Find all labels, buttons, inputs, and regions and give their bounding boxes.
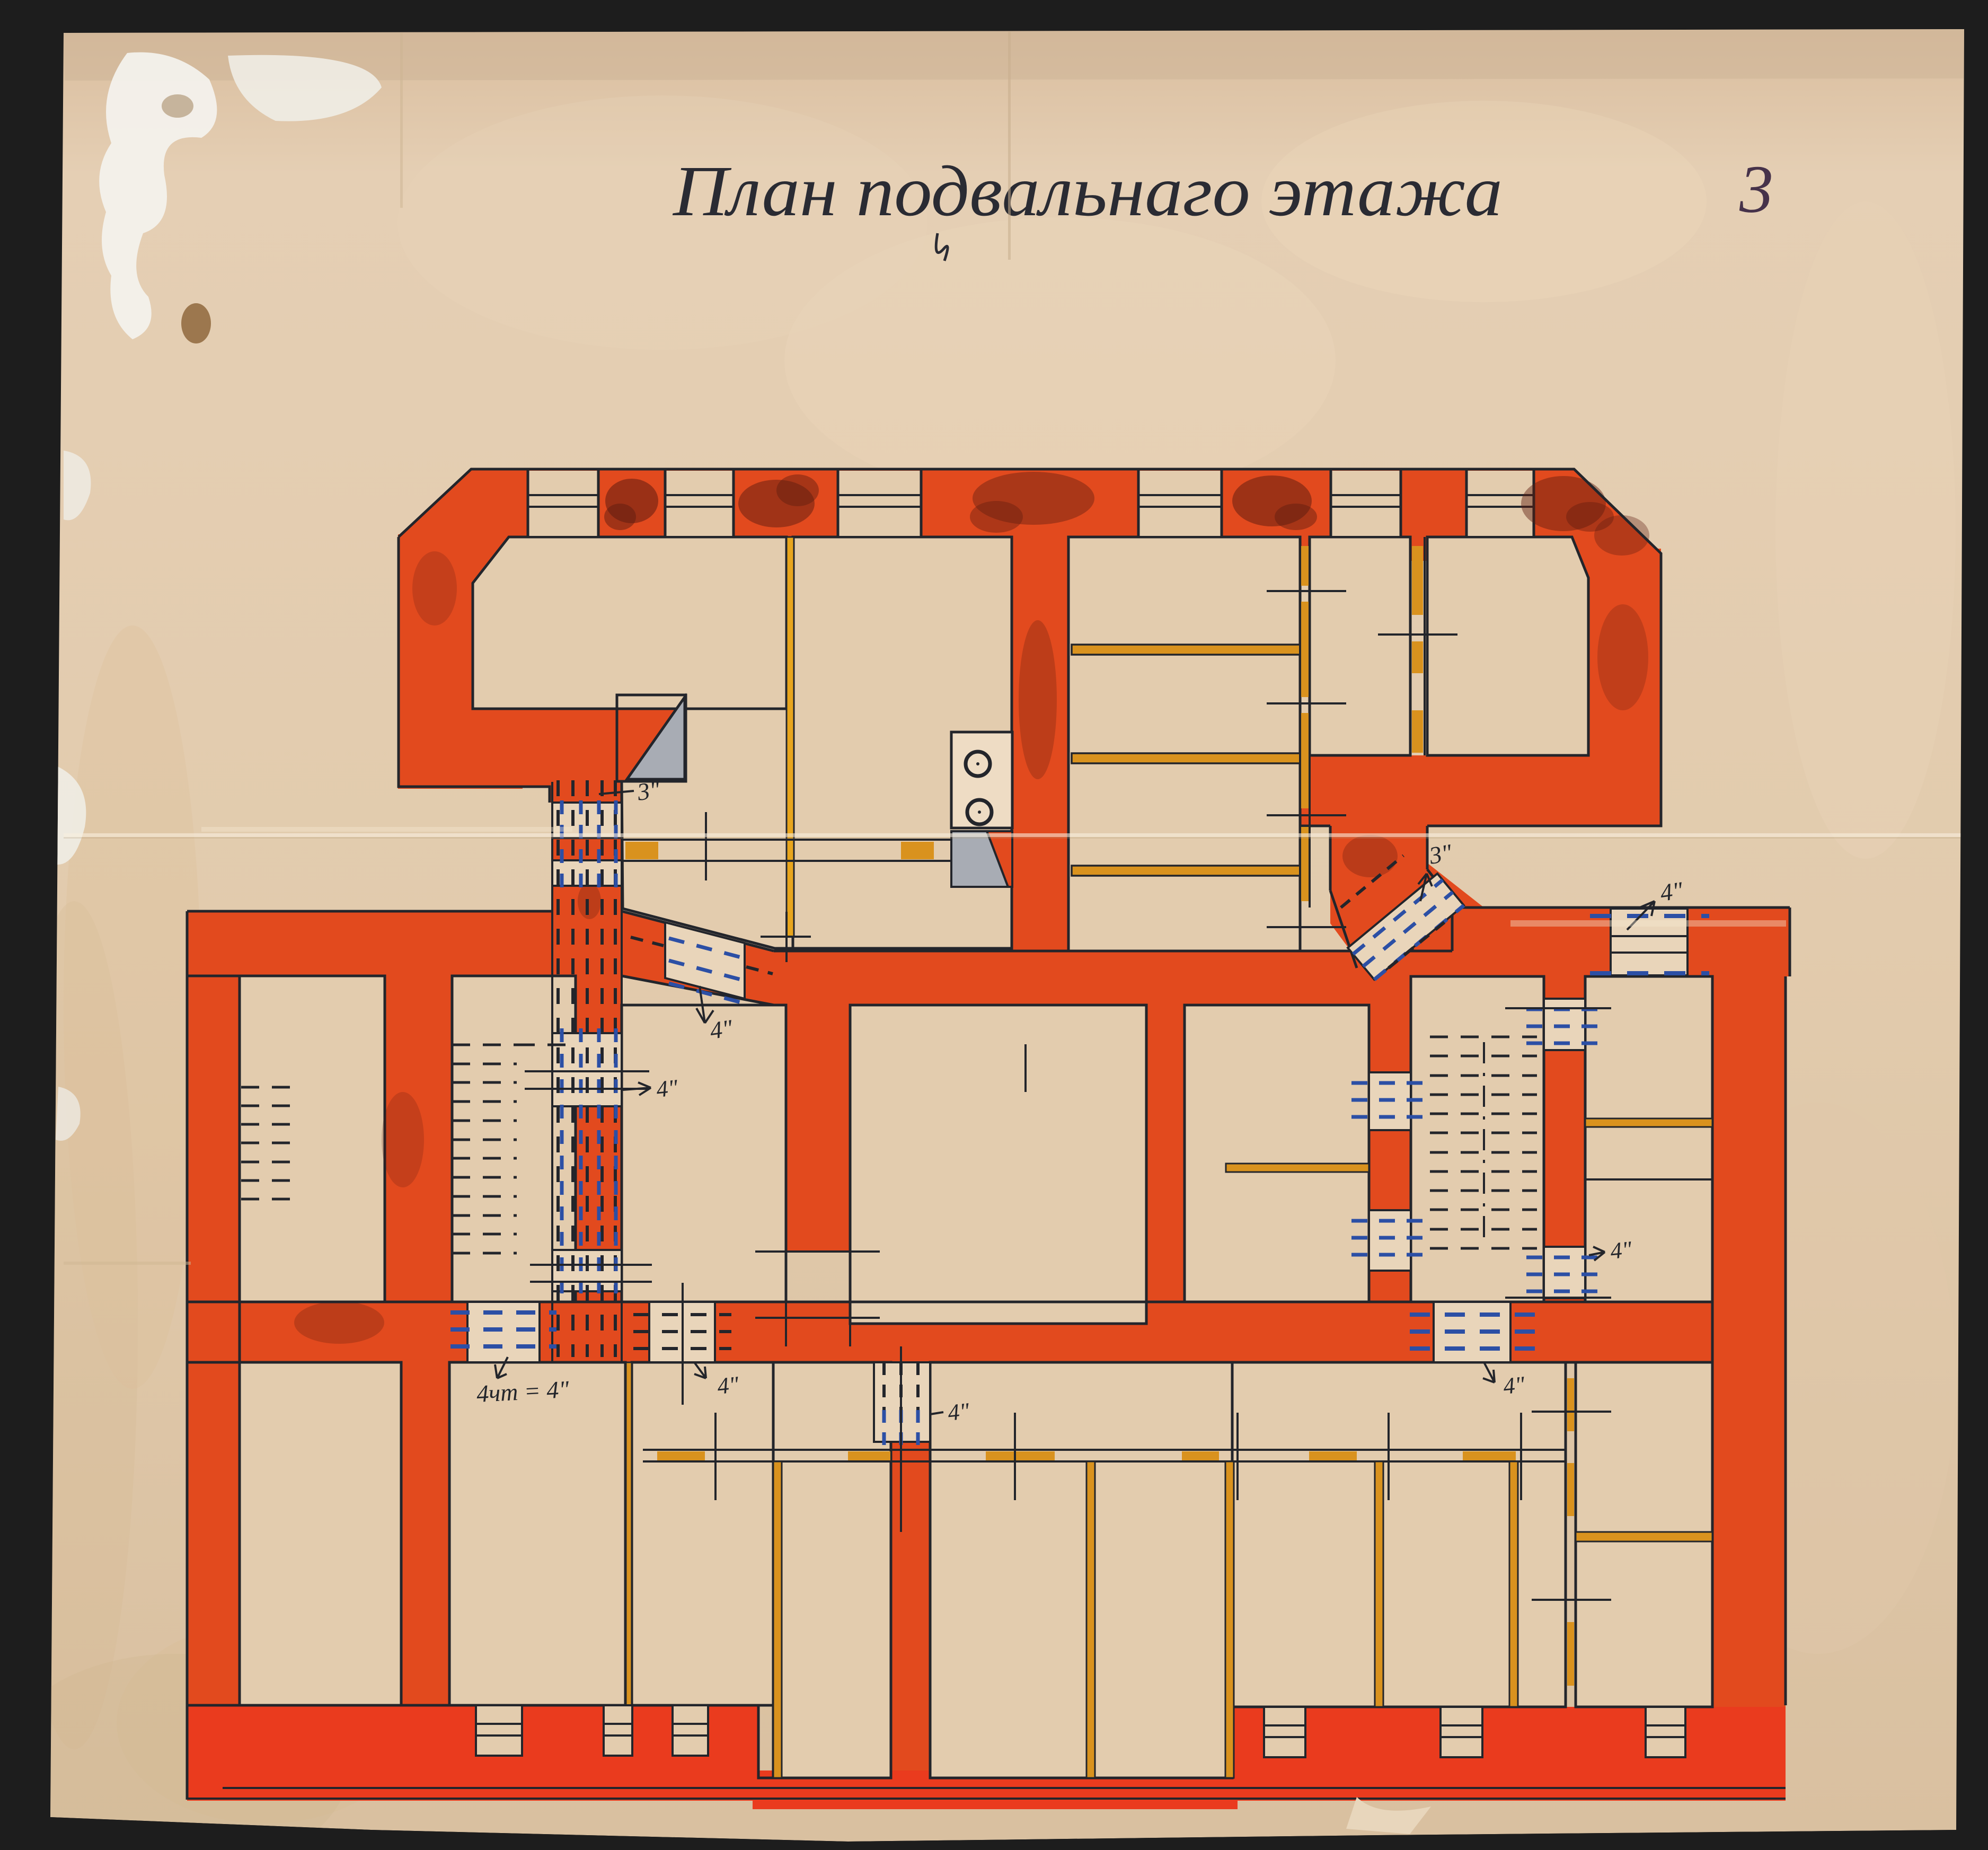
svg-text:4": 4" — [655, 1074, 679, 1103]
svg-text:4": 4" — [708, 1014, 735, 1044]
svg-text:4": 4" — [1658, 876, 1685, 906]
svg-text:3": 3" — [635, 776, 662, 806]
svg-text:План подвальнаго этажа: План подвальнаго этажа — [672, 152, 1503, 231]
svg-text:4": 4" — [716, 1371, 740, 1399]
svg-text:4": 4" — [1502, 1371, 1526, 1399]
svg-text:4чт = 4": 4чт = 4" — [476, 1376, 570, 1407]
svg-text:4": 4" — [947, 1398, 971, 1426]
svg-text:4": 4" — [1609, 1236, 1633, 1264]
svg-text:3: 3 — [1739, 152, 1773, 227]
